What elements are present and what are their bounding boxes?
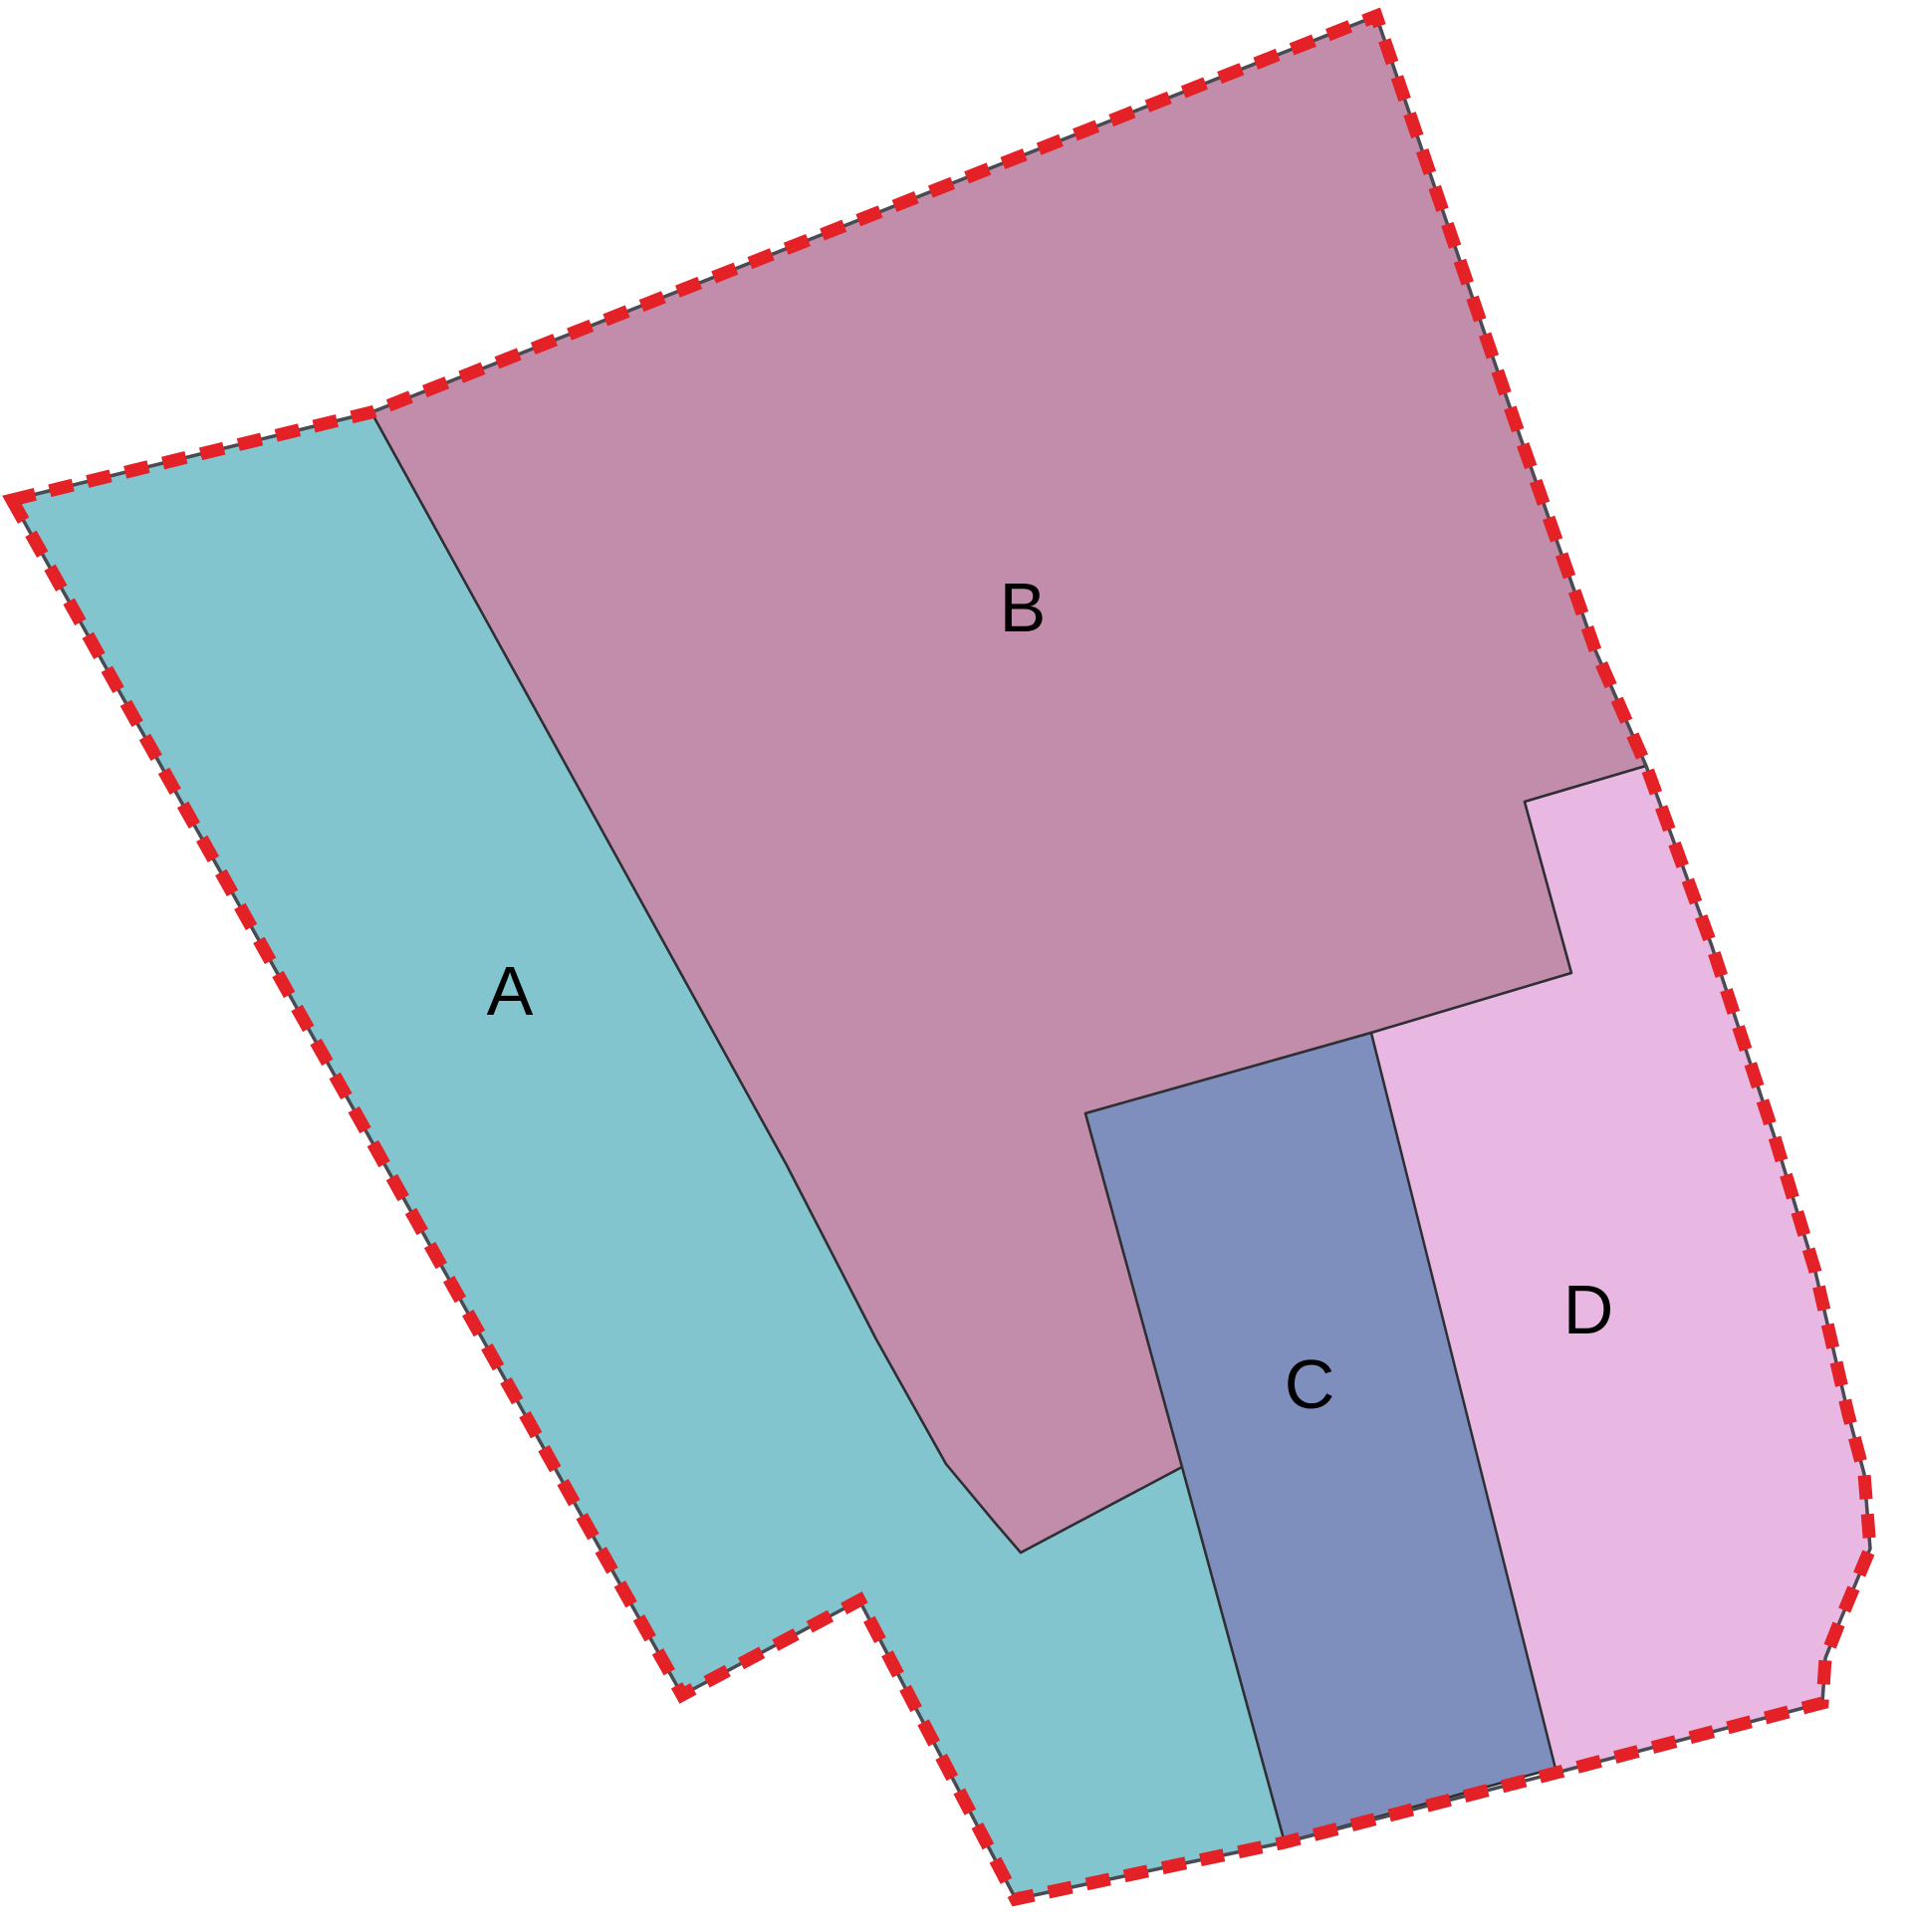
map-canvas: A B C D <box>0 0 1912 1932</box>
parcel-map-view: A B C D <box>0 0 1912 1932</box>
region-a-label: A <box>487 952 534 1030</box>
region-c-label: C <box>1285 1345 1335 1423</box>
region-b-label: B <box>1000 569 1047 646</box>
region-d-label: D <box>1563 1271 1614 1348</box>
